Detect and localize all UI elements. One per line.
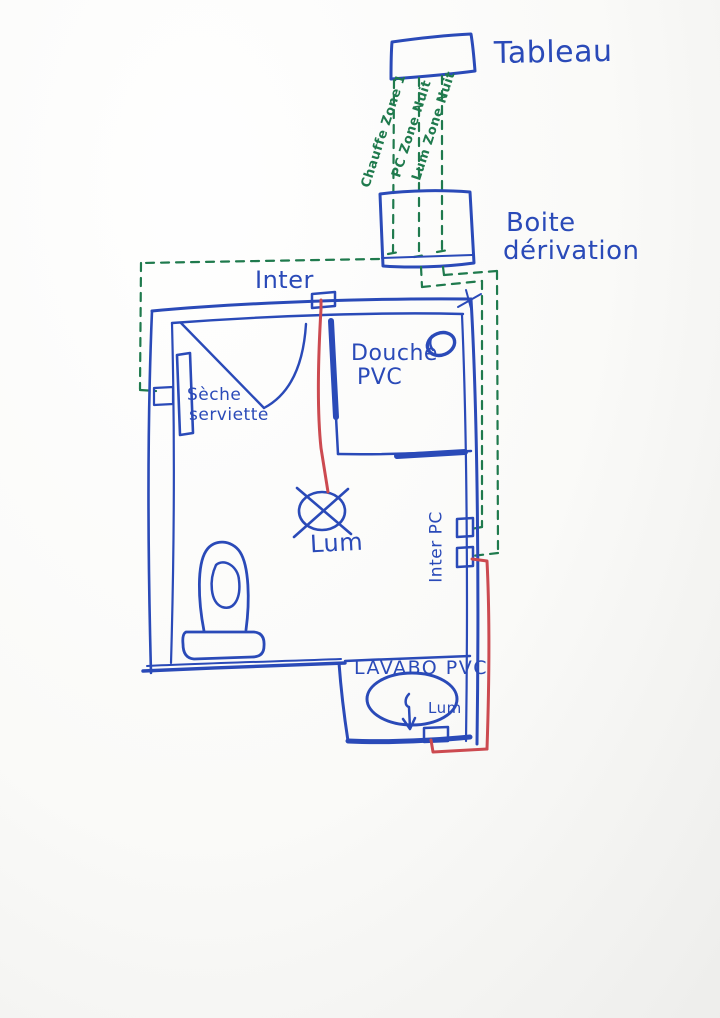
branch-b-drop	[443, 267, 444, 275]
tableau-rectangle	[391, 34, 475, 79]
tableau-label: Tableau	[494, 37, 613, 69]
door-arc	[264, 324, 306, 408]
socket-lower	[457, 547, 473, 567]
junction-box-inner-line	[382, 255, 472, 258]
alcove-bottom-wall	[348, 737, 470, 742]
wall-sockets	[457, 518, 473, 567]
branch-left-horizontal	[141, 259, 379, 263]
towel-dryer-label-line1: Sèche	[187, 387, 241, 404]
branch-left-vertical	[140, 263, 141, 389]
shower-label-line1: Douche	[351, 343, 438, 365]
shower-wall-thin	[336, 417, 338, 454]
circuit-chauffe-end-hook	[388, 252, 399, 254]
alcove-left-wall	[339, 663, 348, 741]
towel-dryer-label-line2: serviette	[189, 407, 269, 424]
wall-top-inner	[172, 313, 463, 323]
toilet	[183, 542, 264, 659]
tableau-panel-box	[391, 34, 475, 79]
toilet-bowl	[199, 542, 248, 631]
branch-b-vertical	[497, 271, 498, 553]
wall-left-inner	[171, 323, 174, 663]
shower-bottom-thick	[397, 452, 465, 456]
floor-plan-sketch	[0, 0, 720, 1018]
red-wire-1	[318, 300, 328, 492]
junction-box-label-line1: Boite	[506, 210, 576, 236]
socket-upper	[457, 518, 473, 537]
toilet-bowl-inner	[212, 562, 240, 607]
red-wire-switch-to-light	[318, 300, 328, 492]
shower-wall-thick	[331, 321, 336, 417]
towel-dryer-wall-connector	[154, 387, 173, 405]
branch-b-horizontal	[444, 271, 497, 275]
switch-label: Inter	[255, 268, 314, 292]
wall-left-outer	[149, 311, 153, 673]
shower-label-line2: PVC	[357, 367, 402, 389]
toilet-tank	[183, 632, 264, 659]
socket-switch-label: Inter PC	[429, 511, 446, 582]
branch-a-drop	[421, 267, 422, 287]
circuit-lum-end-hook	[437, 250, 448, 252]
scanned-sketch-page: Tableau Boite dérivation Chauffe Zone 1 …	[0, 0, 720, 1018]
junction-box-label-line2: dérivation	[503, 238, 640, 264]
branch-a-horizontal	[422, 281, 482, 287]
branch-b-elbow	[472, 553, 498, 556]
red-wire-2-vertical	[472, 559, 489, 749]
sink-light-label: Lum	[428, 701, 462, 716]
ceiling-light-label: Lum	[309, 530, 363, 557]
sink-label: LAVABO PVC	[354, 659, 488, 678]
